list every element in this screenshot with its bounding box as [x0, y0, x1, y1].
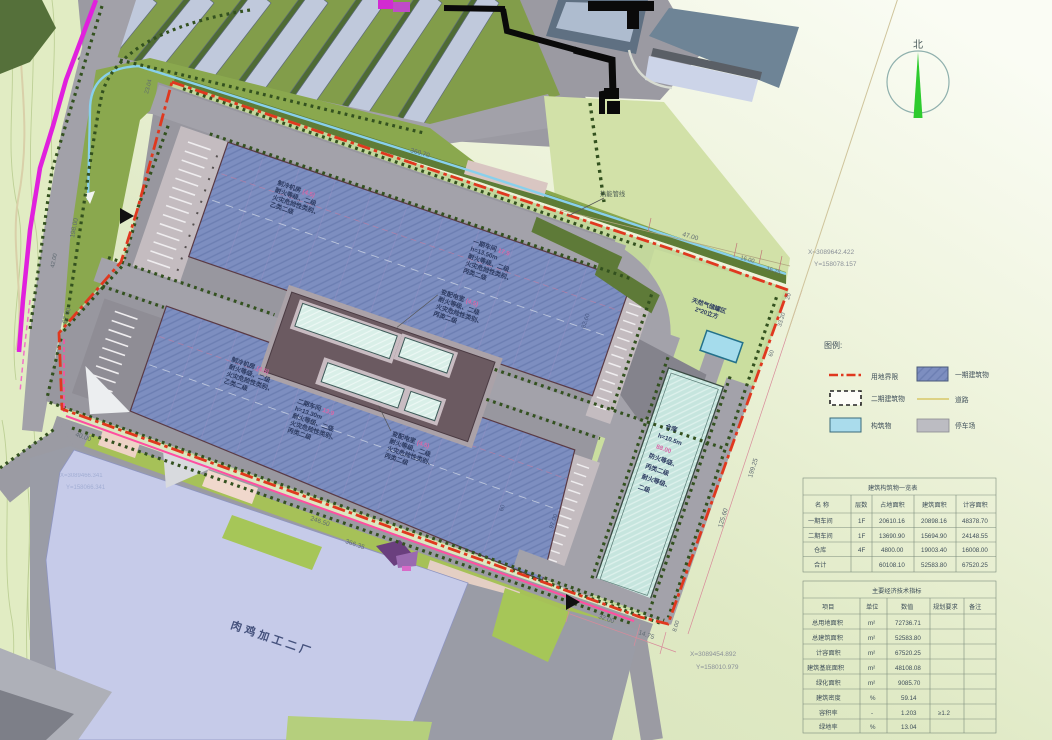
- svg-text:m²: m²: [868, 680, 875, 687]
- svg-text:m²: m²: [868, 635, 875, 642]
- svg-text:19003.40: 19003.40: [921, 547, 947, 554]
- svg-text:规划要求: 规划要求: [933, 603, 958, 611]
- svg-text:项目: 项目: [822, 604, 834, 611]
- svg-text:52583.80: 52583.80: [921, 562, 947, 569]
- svg-text:13.04: 13.04: [901, 724, 917, 731]
- svg-text:16008.00: 16008.00: [962, 547, 988, 554]
- svg-text:容积率: 容积率: [819, 709, 838, 717]
- svg-text:4F: 4F: [858, 547, 865, 554]
- svg-text:仓库: 仓库: [814, 546, 826, 554]
- svg-text:60108.10: 60108.10: [879, 562, 905, 569]
- svg-text:13690.90: 13690.90: [879, 533, 905, 540]
- svg-text:建筑密度: 建筑密度: [816, 694, 841, 702]
- svg-text:总用地面积: 总用地面积: [812, 619, 843, 627]
- svg-text:Y=158078.157: Y=158078.157: [814, 261, 857, 268]
- svg-text:%: %: [870, 724, 876, 731]
- svg-text:1.203: 1.203: [901, 710, 917, 717]
- svg-text:48378.70: 48378.70: [962, 518, 988, 525]
- svg-text:1F: 1F: [858, 533, 865, 540]
- svg-text:X=3089466.341: X=3089466.341: [60, 473, 103, 479]
- svg-text:建筑基底面积: 建筑基底面积: [807, 664, 844, 672]
- svg-text:67520.25: 67520.25: [895, 650, 921, 657]
- svg-text:59.14: 59.14: [901, 695, 917, 702]
- svg-text:停车场: 停车场: [955, 421, 976, 430]
- svg-text:72736.71: 72736.71: [895, 620, 921, 627]
- svg-text:20610.16: 20610.16: [879, 518, 905, 525]
- svg-text:15694.90: 15694.90: [921, 533, 947, 540]
- svg-text:北: 北: [913, 39, 923, 51]
- svg-text:占地面积: 占地面积: [880, 501, 905, 509]
- svg-text:9085.70: 9085.70: [898, 680, 921, 687]
- svg-text:合计: 合计: [814, 561, 826, 569]
- svg-text:建筑面积: 建筑面积: [922, 501, 947, 509]
- svg-text:建筑构筑物一览表: 建筑构筑物一览表: [868, 484, 918, 492]
- svg-text:图例:: 图例:: [824, 340, 842, 350]
- svg-text:用地界限: 用地界限: [871, 372, 898, 381]
- svg-text:构筑物: 构筑物: [871, 421, 892, 430]
- svg-text:一期车间: 一期车间: [808, 517, 833, 525]
- svg-text:层数: 层数: [855, 501, 868, 509]
- svg-text:道路: 道路: [955, 395, 969, 404]
- svg-text:二期车间: 二期车间: [808, 532, 833, 540]
- svg-text:单位: 单位: [866, 603, 878, 611]
- svg-text:m²: m²: [868, 620, 875, 627]
- svg-text:X=3089454.892: X=3089454.892: [690, 651, 736, 658]
- svg-text:52583.80: 52583.80: [895, 635, 921, 642]
- svg-text:一期建筑物: 一期建筑物: [955, 370, 989, 379]
- svg-text:计容面积: 计容面积: [963, 501, 988, 509]
- svg-text:总建筑面积: 总建筑面积: [812, 634, 843, 642]
- svg-text:主要经济技术指标: 主要经济技术指标: [872, 587, 922, 595]
- svg-text:m²: m²: [868, 650, 875, 657]
- svg-text:≥1.2: ≥1.2: [938, 710, 951, 717]
- svg-text:%: %: [870, 695, 876, 702]
- svg-text:计容面积: 计容面积: [816, 649, 841, 657]
- svg-text:热能管线: 热能管线: [600, 189, 626, 198]
- svg-text:备注: 备注: [969, 603, 981, 611]
- svg-text:绿地率: 绿地率: [819, 723, 838, 731]
- svg-text:-: -: [871, 710, 873, 717]
- svg-text:1F: 1F: [858, 518, 865, 525]
- svg-text:20898.16: 20898.16: [921, 518, 947, 525]
- svg-text:名 称: 名 称: [815, 501, 829, 509]
- svg-text:数值: 数值: [901, 603, 913, 611]
- svg-text:绿化面积: 绿化面积: [816, 679, 841, 687]
- svg-text:67520.25: 67520.25: [962, 562, 988, 569]
- svg-text:24148.55: 24148.55: [962, 533, 988, 540]
- svg-text:二期建筑物: 二期建筑物: [871, 394, 905, 403]
- svg-text:4800.00: 4800.00: [881, 547, 904, 554]
- svg-text:48108.08: 48108.08: [895, 665, 921, 672]
- svg-text:m²: m²: [868, 665, 875, 672]
- svg-text:Y=158010.979: Y=158010.979: [696, 664, 739, 671]
- svg-text:Y=158066.341: Y=158066.341: [66, 485, 106, 491]
